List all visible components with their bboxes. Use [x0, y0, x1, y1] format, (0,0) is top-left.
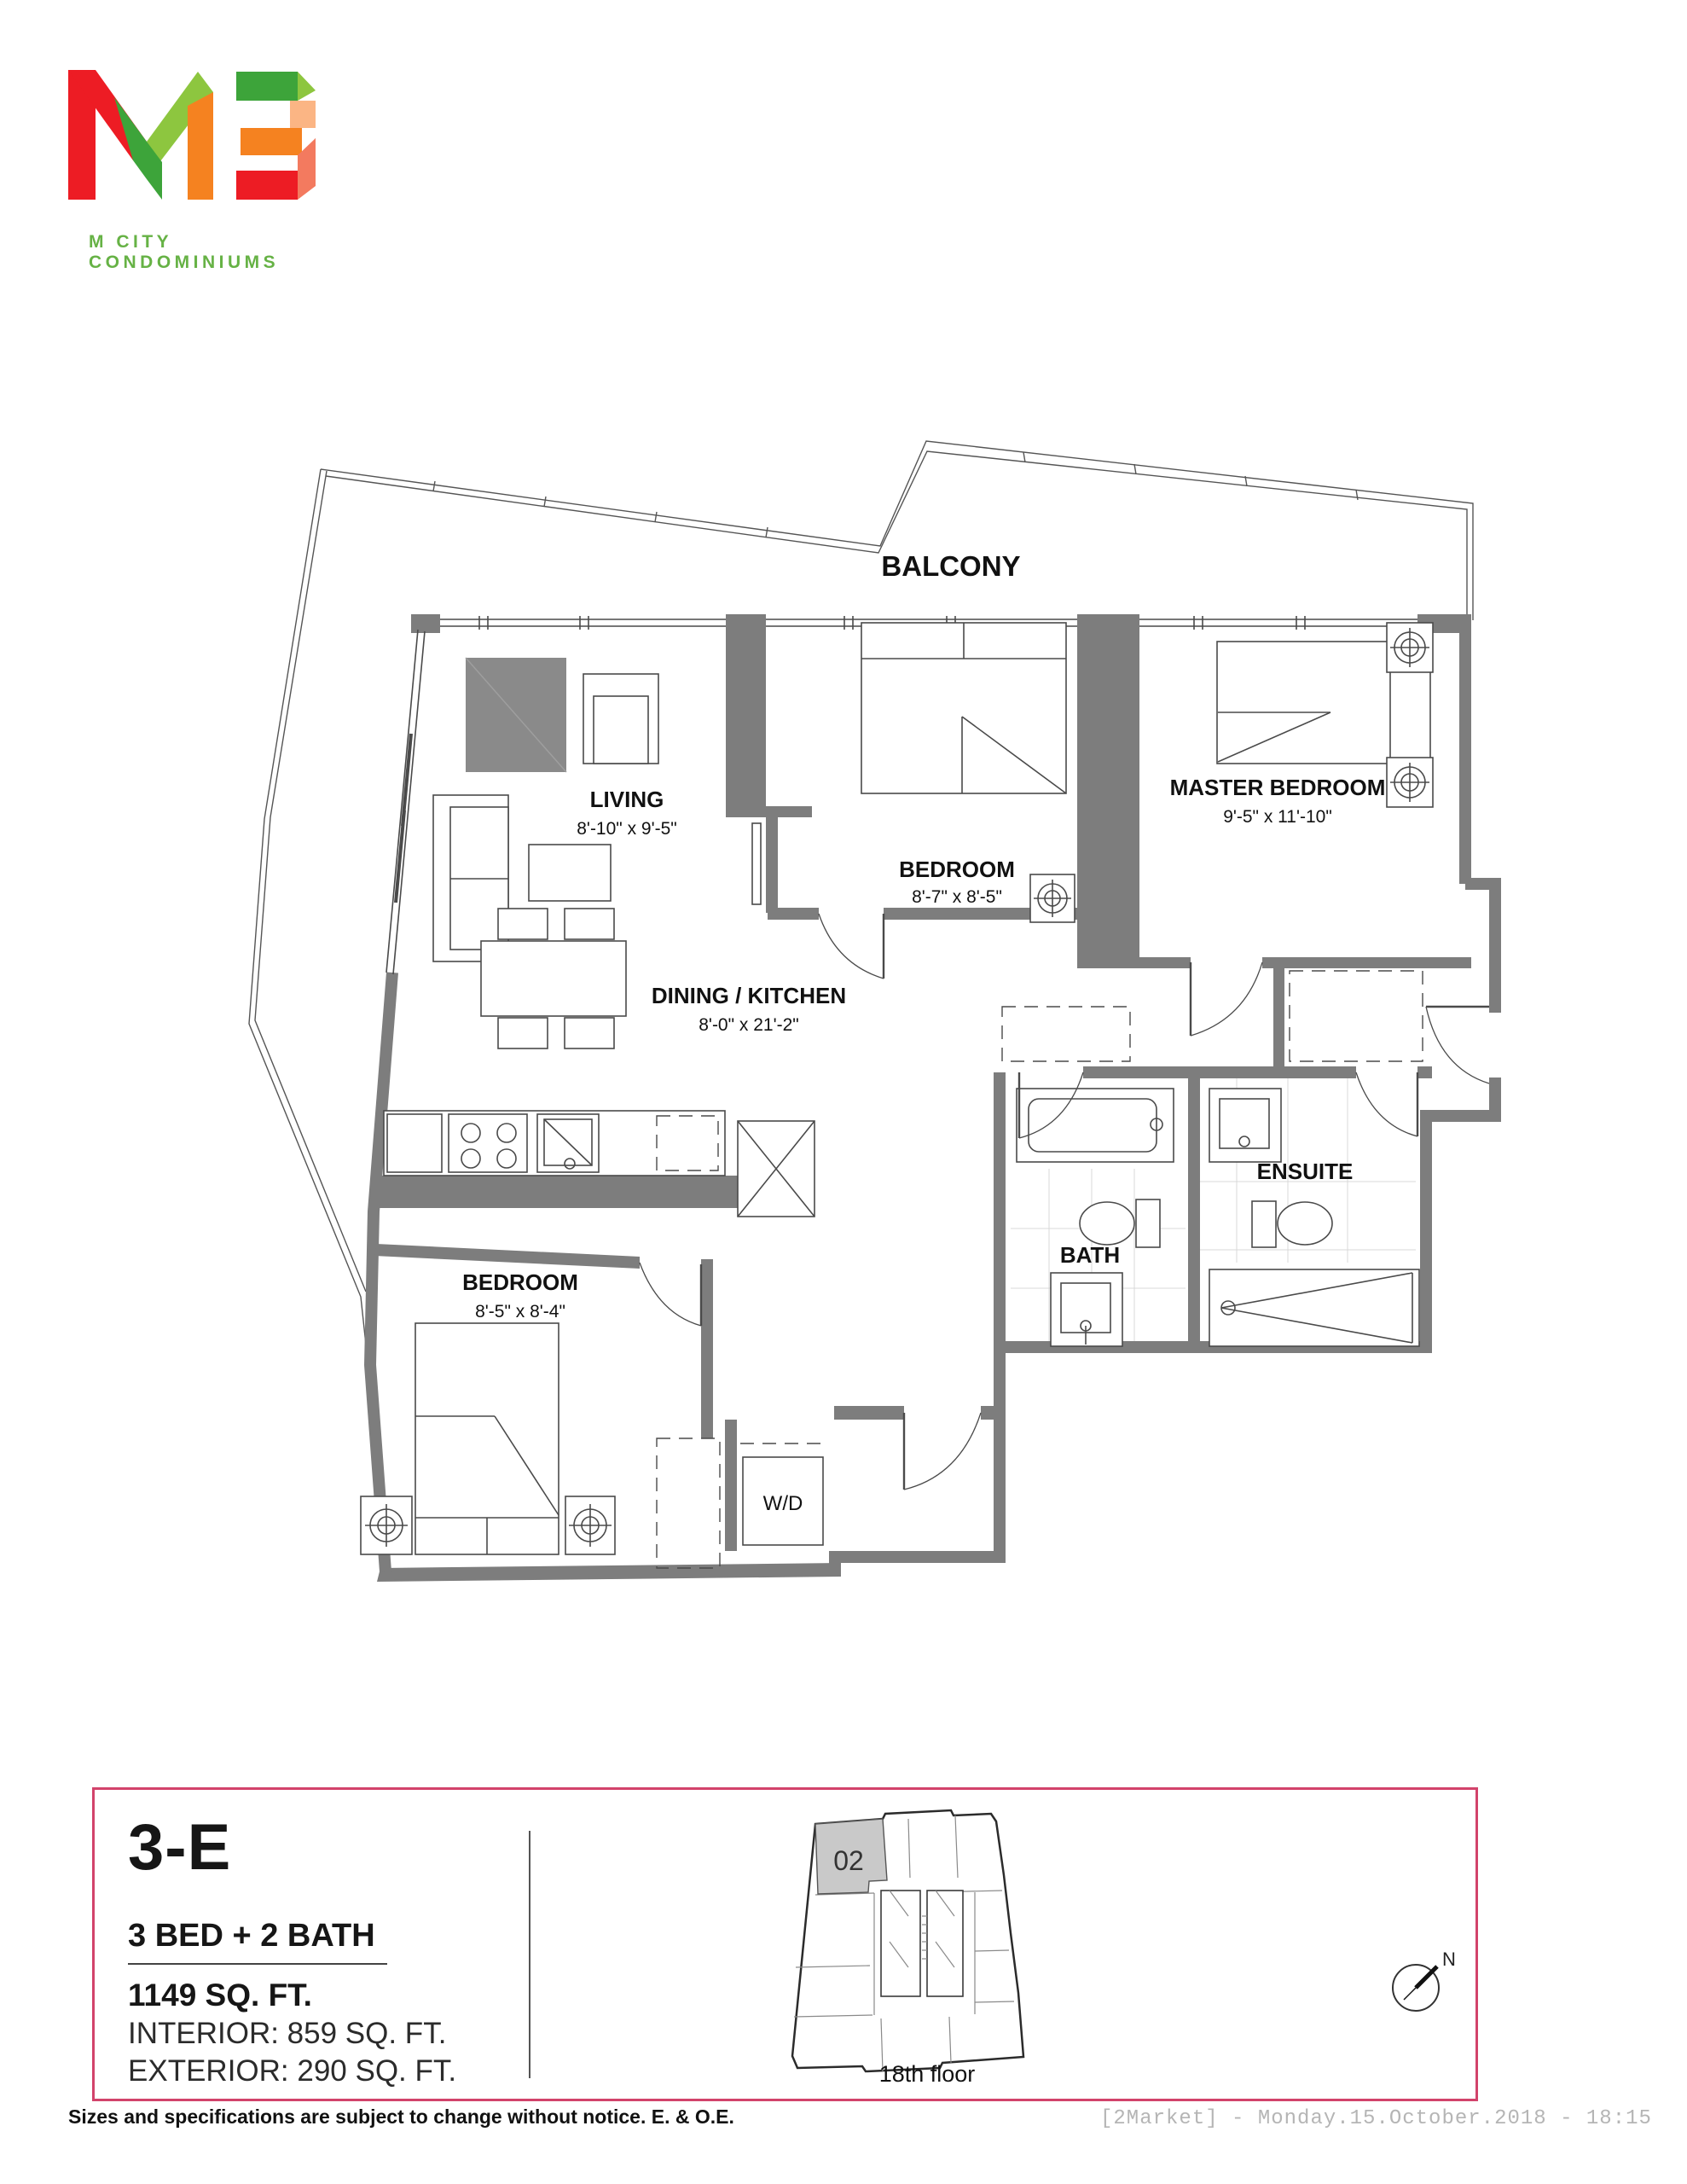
logo-digit-3: [236, 72, 316, 200]
unit-total-area: 1149 SQ. FT.: [128, 1978, 312, 2013]
bath-label: BATH: [1060, 1242, 1120, 1268]
compass-n-label: N: [1442, 1949, 1456, 1970]
unit-code: 3-E: [128, 1810, 231, 1885]
unit-config: 3 BED + 2 BATH: [128, 1918, 387, 1965]
north-arrow-icon: N: [1360, 1925, 1480, 2044]
bedroom3-furniture: [361, 1323, 615, 1554]
floorplan-page: { "logo": { "brand": "M3", "tagline": "M…: [0, 0, 1687, 2184]
m3-logo: [61, 60, 326, 222]
logo-tagline: M CITY CONDOMINIUMS: [89, 232, 345, 273]
living-dims: 8'-10" x 9'-5": [577, 819, 676, 839]
bedroom3-label: BEDROOM: [462, 1269, 578, 1295]
unit-exterior-area: EXTERIOR: 290 SQ. FT.: [128, 2054, 456, 2088]
floor-plan: BALCONY LIVING 8'-10" x 9'-5" BEDROOM 8'…: [179, 409, 1510, 1647]
footer-disclaimer: Sizes and specifications are subject to …: [68, 2106, 734, 2129]
footer-stamp: [2Market] - Monday.15.October.2018 - 18:…: [1100, 2107, 1652, 2130]
dining-kitchen-dims: 8'-0" x 21'-2": [699, 1015, 798, 1035]
keyplan: 02 18th floor: [780, 1797, 1062, 2087]
keyplan-unit-number: 02: [833, 1845, 864, 1876]
master-furniture: [1217, 623, 1433, 1061]
balcony-label: BALCONY: [881, 550, 1020, 582]
ensuite-label: ENSUITE: [1257, 1159, 1354, 1184]
laundry-label: W/D: [763, 1492, 803, 1515]
master-label: MASTER BEDROOM: [1170, 775, 1386, 800]
bedroom2-dims: 8'-7" x 8'-5": [912, 887, 1002, 907]
ensuite-fixtures: [1200, 1078, 1419, 1346]
dining-table: [481, 909, 626, 1048]
logo-letter-m: [68, 70, 213, 200]
bedroom2-label: BEDROOM: [899, 857, 1015, 882]
keyplan-floor-label: 18th floor: [879, 2061, 976, 2087]
living-label: LIVING: [590, 787, 664, 812]
info-divider: [529, 1831, 530, 2078]
bedroom3-dims: 8'-5" x 8'-4": [475, 1302, 565, 1321]
unit-interior-area: INTERIOR: 859 SQ. FT.: [128, 2017, 446, 2051]
glass-wall-slider: [386, 630, 425, 974]
dining-kitchen-label: DINING / KITCHEN: [652, 983, 846, 1008]
master-dims: 9'-5" x 11'-10": [1223, 807, 1332, 827]
bath-fixtures: [1011, 1089, 1186, 1346]
hall-closet: [1002, 1007, 1130, 1061]
